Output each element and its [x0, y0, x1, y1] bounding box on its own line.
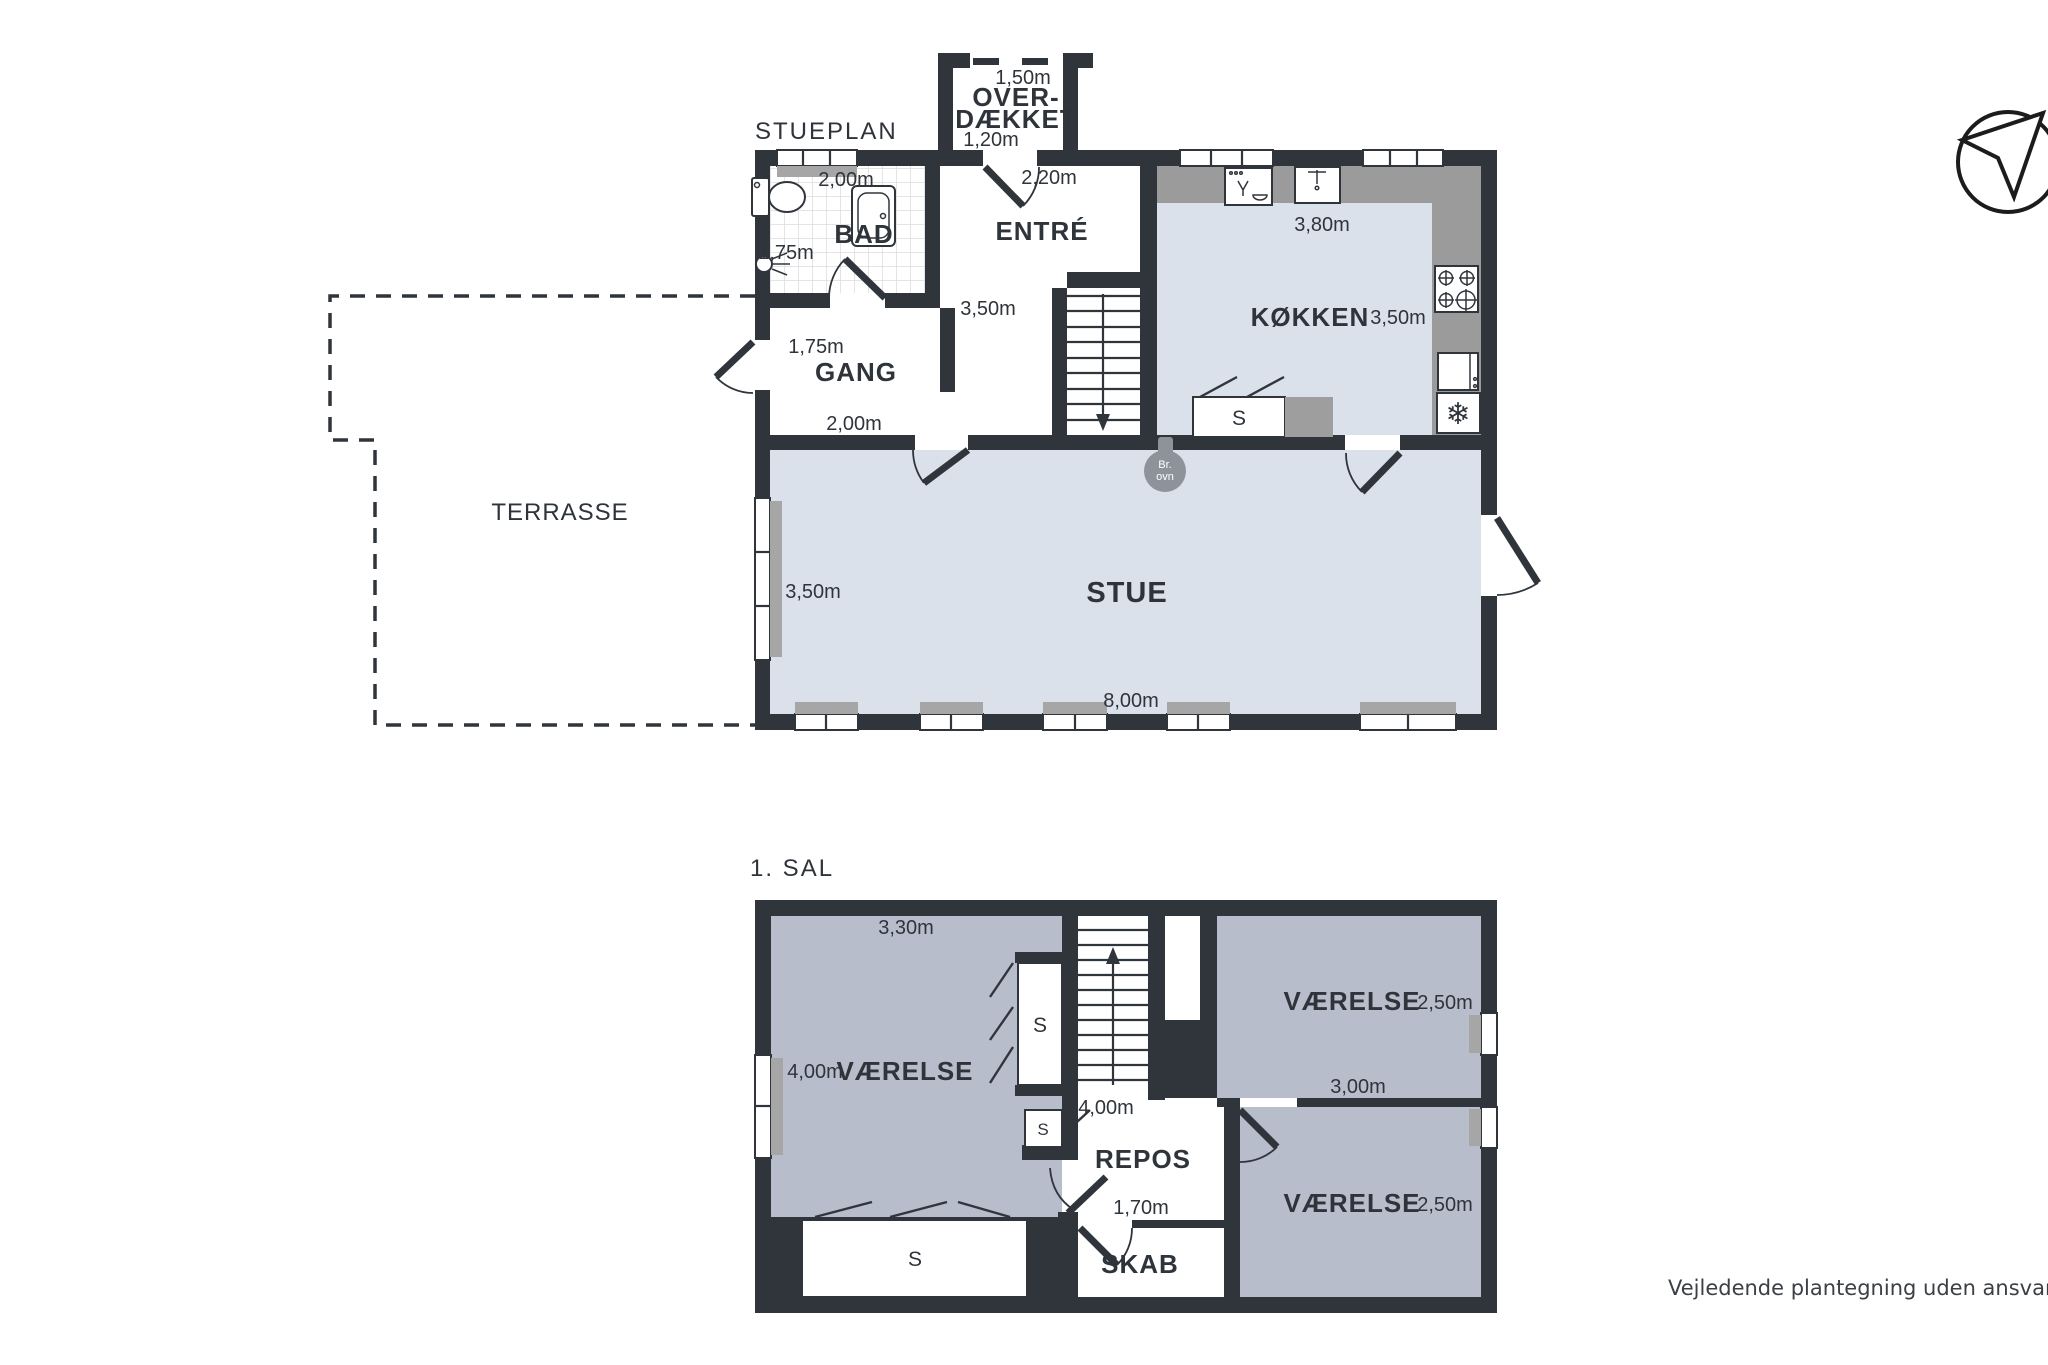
svg-text:ovn: ovn — [1156, 471, 1174, 483]
vaerelse-left-name-label: VÆRELSE — [836, 1056, 973, 1086]
gang-entre-wall — [940, 308, 955, 392]
stue-name-label: STUE — [1086, 577, 1167, 609]
kokken-width-label: 3,80m — [1294, 214, 1350, 236]
stair-west-wall — [1052, 288, 1067, 435]
vaerelse-left-depth-label: 4,00m — [787, 1061, 843, 1083]
vaerelse-br-name-label: VÆRELSE — [1283, 1188, 1420, 1218]
stairs-first — [1078, 930, 1148, 1085]
gang-south-wall — [755, 435, 915, 450]
toilet-icon — [752, 178, 805, 216]
entre-depth-label: 3,50m — [960, 298, 1016, 320]
fridge-icon — [1438, 353, 1478, 390]
vaerelse-tr-width-label: 3,00m — [1330, 1076, 1386, 1098]
first-floor-plan: 1. SAL — [750, 855, 1497, 1313]
gang-name-label: GANG — [815, 357, 897, 387]
bad-width-label: 2,00m — [818, 169, 874, 191]
kitchen-west-wall — [1140, 165, 1157, 435]
bad-south-wall-left — [755, 293, 830, 308]
kitchen-gray-box — [1285, 397, 1333, 437]
closet-wide-label: S — [908, 1248, 922, 1271]
bad-name-label: BAD — [834, 219, 893, 249]
stairs-ground — [1067, 294, 1140, 431]
stairs-down-arrow — [1096, 414, 1110, 431]
wall-pier — [1165, 1020, 1217, 1098]
bad-south-wall-right — [885, 293, 940, 308]
stair-north-stub — [1067, 272, 1140, 288]
gang-top-label: 1,75m — [788, 336, 844, 358]
closet-small-label: S — [1037, 1120, 1048, 1139]
disclaimer-text: Vejledende plantegning uden ansvar — [1668, 1276, 2048, 1300]
bad-east-wall — [925, 165, 940, 308]
kokken-depth-label: 3,50m — [1370, 307, 1426, 329]
dishwasher-icon — [1225, 168, 1272, 205]
closet-label: S — [1232, 407, 1246, 430]
stove-icon — [1435, 266, 1478, 312]
entre-name-label: ENTRÉ — [995, 216, 1088, 246]
svg-text:Br.: Br. — [1158, 459, 1171, 471]
porch-depth-label: 1,20m — [963, 129, 1019, 151]
stue-north-wall-left — [968, 435, 1345, 450]
ground-floor-plan: STUEPLAN — [330, 53, 1538, 730]
stairwell-east-wall — [1148, 916, 1165, 1100]
snowflake-icon: ❄ — [1445, 397, 1470, 432]
freezer-icon: ❄ — [1437, 393, 1480, 433]
closet-tall-label: S — [1033, 1014, 1047, 1037]
stairwell-west-wall — [1062, 900, 1078, 1160]
ground-floor-title: STUEPLAN — [755, 118, 898, 145]
repos-depth-label: 1,70m — [1113, 1197, 1169, 1219]
bottom-right-room-west-wall — [1224, 1107, 1240, 1297]
stairs-up-arrow — [1106, 947, 1120, 964]
stue-width-label: 8,00m — [1103, 690, 1159, 712]
repos-name-label: REPOS — [1095, 1144, 1191, 1174]
first-floor-title: 1. SAL — [750, 855, 834, 882]
skab-name-label: SKAB — [1101, 1249, 1179, 1279]
vaerelse-left-width-label: 3,30m — [878, 917, 934, 939]
stue-north-wall-right — [1400, 435, 1481, 450]
porch-west-wall — [938, 53, 953, 165]
floor-plan-canvas: STUEPLAN — [0, 0, 2048, 1365]
gang-width-label: 2,00m — [826, 413, 882, 435]
kokken-name-label: KØKKEN — [1251, 302, 1370, 332]
repos-width-label: 4,00m — [1078, 1097, 1134, 1119]
top-right-room-west-wall — [1200, 916, 1217, 1020]
bad-inner-label: 1,75m — [758, 242, 814, 264]
entre-door-label: 2,20m — [1021, 167, 1077, 189]
vaerelse-tr-size-label: 2,50m — [1417, 992, 1473, 1014]
terrasse-name-label: TERRASSE — [491, 499, 628, 526]
kitchen-sink-icon — [1295, 167, 1340, 203]
vaerelse-br-size-label: 2,50m — [1417, 1194, 1473, 1216]
stue-depth-label: 3,50m — [785, 581, 841, 603]
vaerelse-tr-name-label: VÆRELSE — [1283, 986, 1420, 1016]
compass-icon — [1958, 112, 2048, 212]
